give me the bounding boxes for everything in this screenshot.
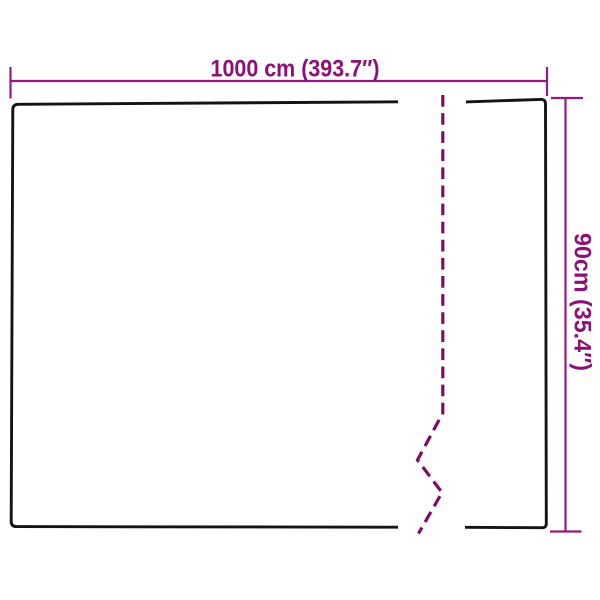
svg-text:90cm (35.4″): 90cm (35.4″) xyxy=(569,233,596,371)
svg-text:1000 cm (393.7″): 1000 cm (393.7″) xyxy=(211,55,380,82)
